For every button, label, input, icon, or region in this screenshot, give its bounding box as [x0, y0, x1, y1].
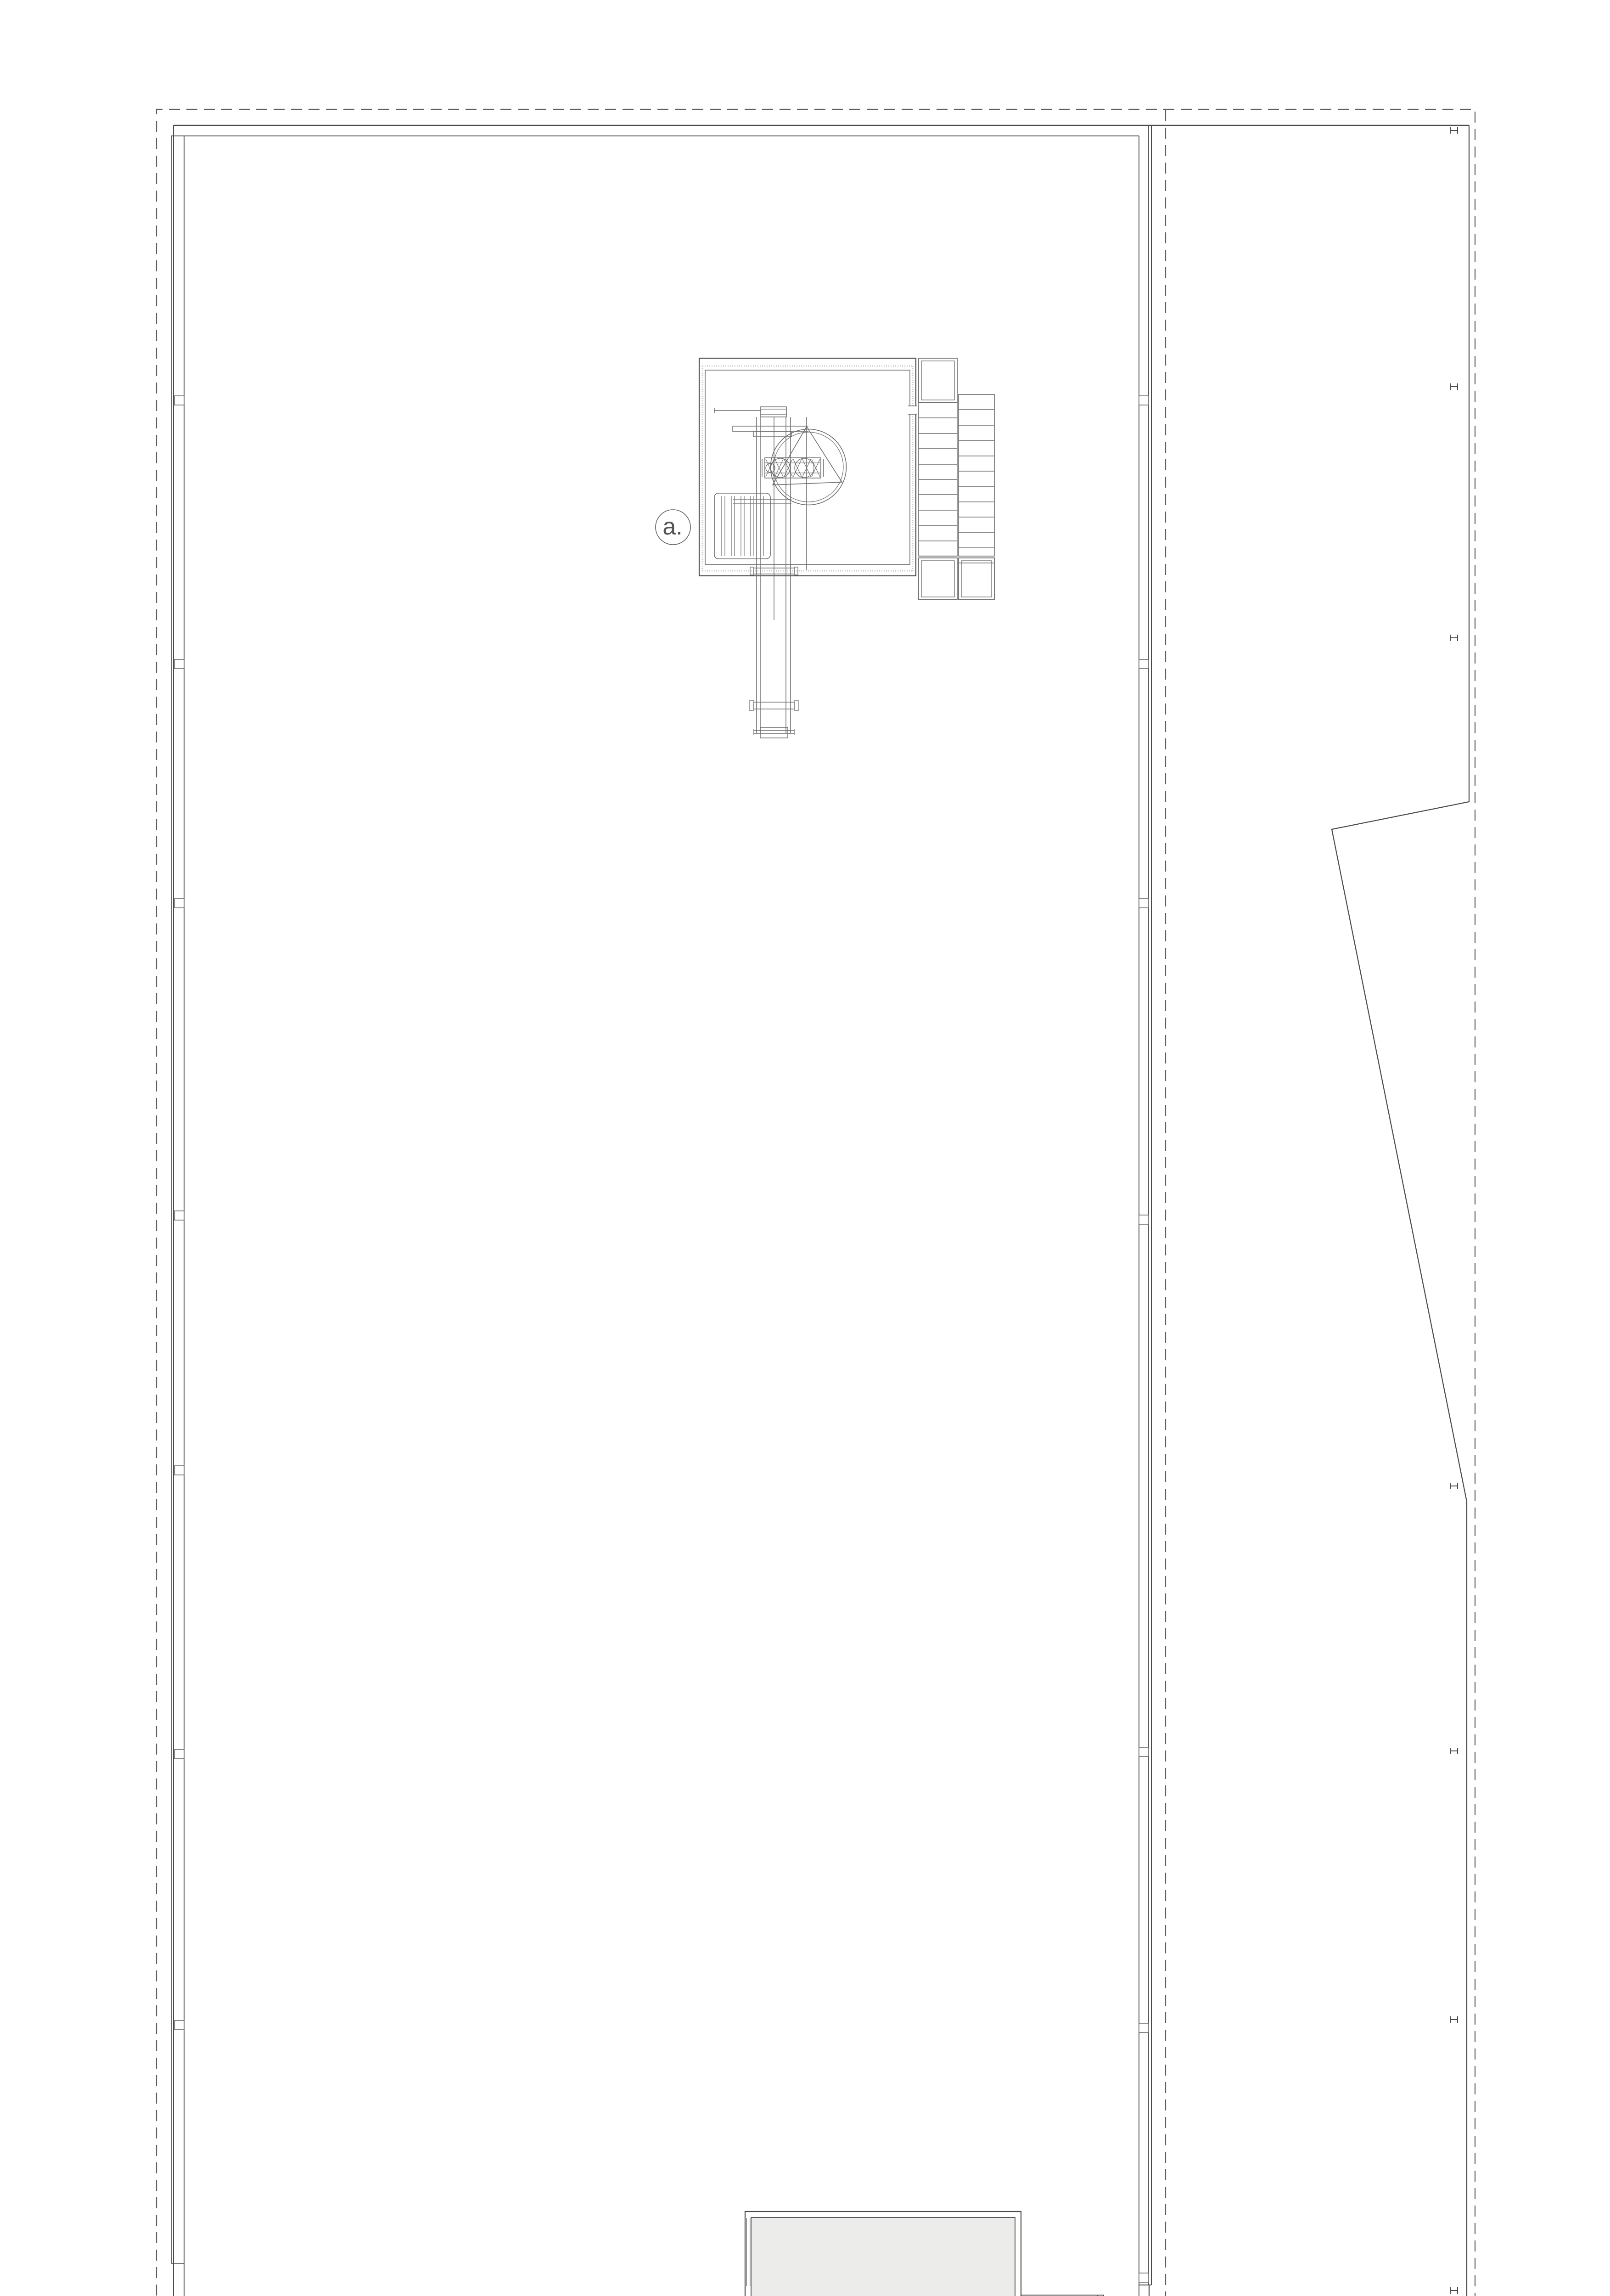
svg-text:a.: a.	[662, 513, 682, 540]
